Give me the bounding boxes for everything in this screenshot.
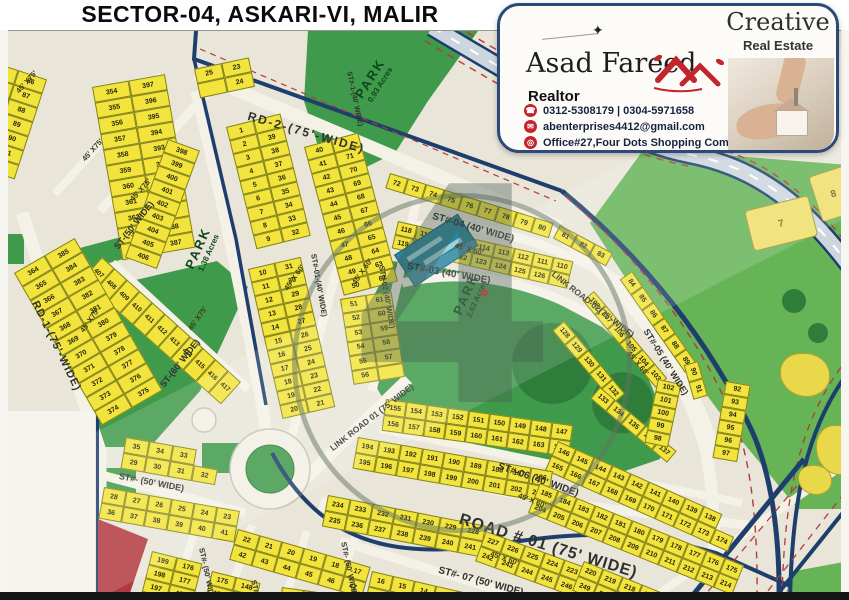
plot-cell: 159 [444,424,467,443]
house-logo-icon [650,46,726,94]
model-house [776,110,808,136]
decor-line [542,33,598,40]
right-frame [841,30,849,592]
plot-cell: 163 [527,435,550,454]
blank-paper-area [0,411,96,593]
handover-photo [728,58,834,151]
plot-cell: 156 [382,415,405,434]
address-row2: Malir cantt, Karachi [544,150,645,153]
flyer: SECTOR-04, ASKARI-VI, MALIR [0,0,849,600]
address-line1: Office#27,Four Dots Shopping Complex, [543,137,754,149]
phone-icon: ☎ [524,104,537,117]
location-icon: ◎ [524,136,537,149]
plot-blob [798,465,832,495]
tree-icon [808,323,828,343]
keys [794,88,798,106]
sparkle-icon: ✦ [592,22,604,39]
plot-cell: 160 [465,427,488,446]
plot-cell: 157 [402,418,425,437]
email-address: abenterprises4412@gmail.com [543,121,705,133]
bottom-bar [0,592,849,600]
business-card: ✦ Creative Real Estate Asad Fareed Realt… [497,3,839,153]
phone-numbers: 0312-5308179 | 0304-5971658 [543,105,694,117]
agent-role: Realtor [528,88,580,105]
phone-row: ☎ 0312-5308179 | 0304-5971658 [524,104,694,117]
email-icon: ✉ [524,120,537,133]
plot-blob [780,353,830,397]
email-row: ✉ abenterprises4412@gmail.com [524,120,705,133]
tree-icon [782,289,806,313]
left-frame [0,30,8,592]
address-row: ◎ Office#27,Four Dots Shopping Complex, [524,136,754,149]
brand-name: Creative [722,8,834,36]
plot-cell: 161 [486,429,509,448]
plot-cell: 158 [423,421,446,440]
page-title: SECTOR-04, ASKARI-VI, MALIR [0,1,520,28]
address-line2: Malir cantt, Karachi [544,150,645,153]
brand-subtitle: Real Estate [728,38,828,53]
plot-cell: 162 [506,432,529,451]
